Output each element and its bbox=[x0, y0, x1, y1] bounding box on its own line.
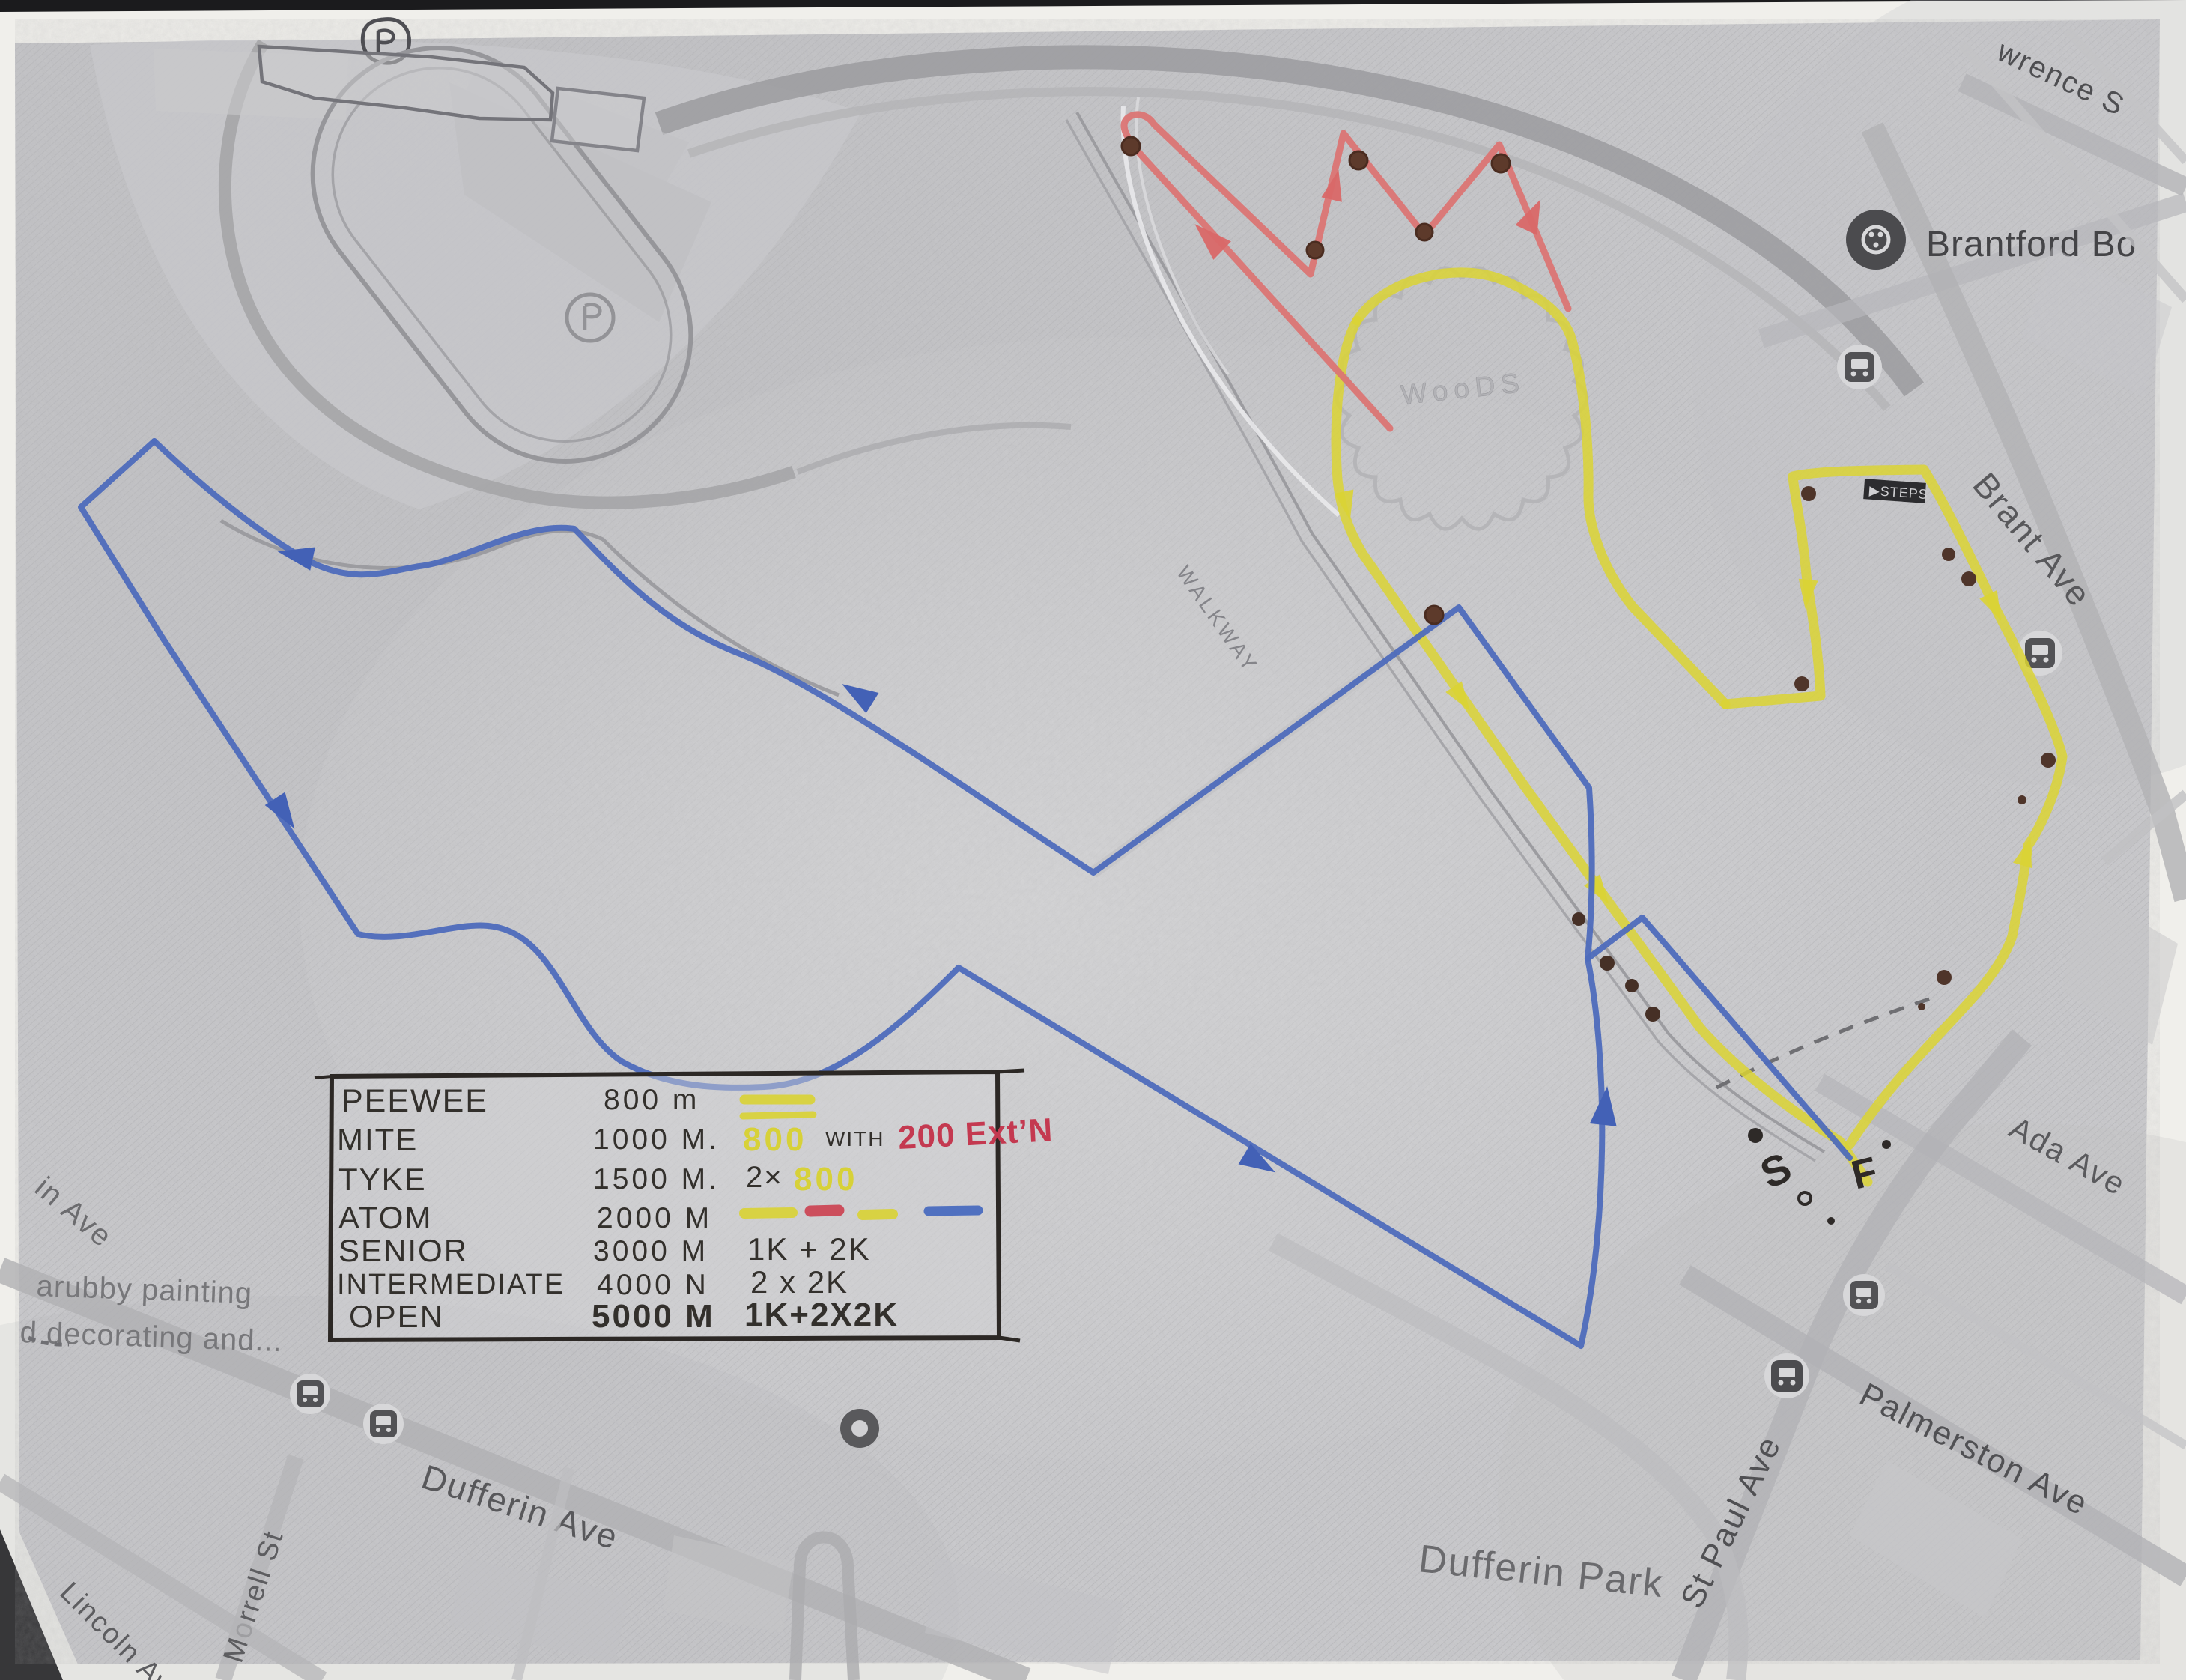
svg-text:WITH: WITH bbox=[825, 1127, 885, 1150]
svg-text:PEEWEE: PEEWEE bbox=[341, 1083, 488, 1119]
svg-text:1K+2X2K: 1K+2X2K bbox=[744, 1297, 899, 1333]
svg-text:TYKE: TYKE bbox=[338, 1162, 427, 1197]
svg-text:ATOM: ATOM bbox=[338, 1200, 432, 1235]
svg-text:1K + 2K: 1K + 2K bbox=[747, 1231, 871, 1267]
svg-text:INTERMEDIATE: INTERMEDIATE bbox=[337, 1269, 565, 1300]
svg-text:2000 M: 2000 M bbox=[597, 1202, 712, 1234]
svg-text:800 m: 800 m bbox=[604, 1084, 699, 1116]
svg-text:5000 M: 5000 M bbox=[592, 1298, 715, 1335]
svg-text:800: 800 bbox=[794, 1161, 857, 1198]
svg-text:OPEN: OPEN bbox=[349, 1299, 444, 1334]
svg-text:3000 M: 3000 M bbox=[593, 1235, 708, 1267]
svg-text:1000 M.: 1000 M. bbox=[593, 1123, 720, 1156]
svg-text:2 x 2K: 2 x 2K bbox=[750, 1264, 848, 1300]
svg-text:4000 N: 4000 N bbox=[597, 1269, 709, 1301]
svg-text:MITE: MITE bbox=[337, 1122, 418, 1157]
svg-text:Brantford Bo: Brantford Bo bbox=[1926, 225, 2137, 264]
svg-text:800: 800 bbox=[743, 1121, 807, 1158]
svg-text:1500 M.: 1500 M. bbox=[593, 1163, 720, 1195]
svg-text:SENIOR: SENIOR bbox=[338, 1233, 468, 1268]
svg-text:2×: 2× bbox=[746, 1161, 783, 1194]
